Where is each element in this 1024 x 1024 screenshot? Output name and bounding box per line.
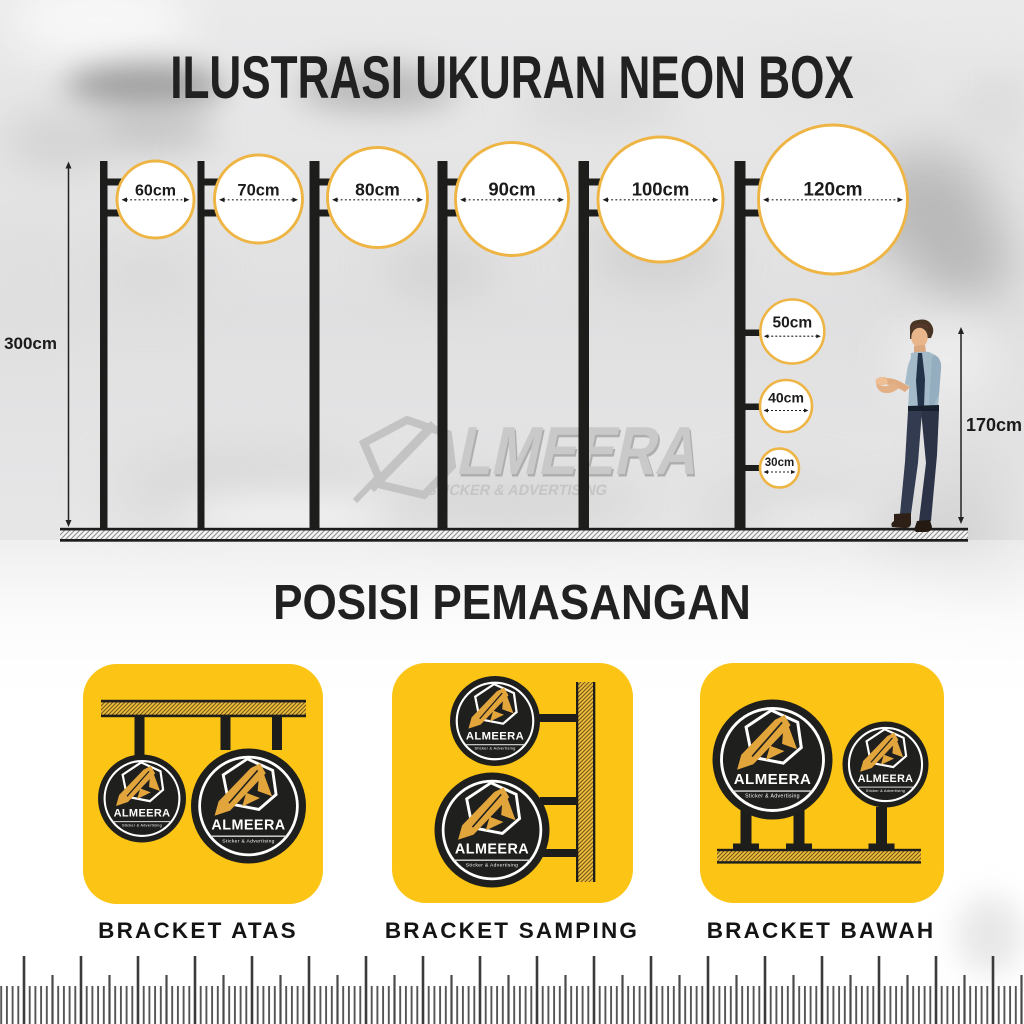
svg-text:90cm: 90cm [488,179,535,200]
svg-text:170cm: 170cm [966,415,1022,435]
svg-text:70cm: 70cm [237,182,279,200]
svg-text:50cm: 50cm [772,315,812,332]
svg-text:40cm: 40cm [768,390,804,406]
svg-text:60cm: 60cm [135,183,176,200]
svg-text:80cm: 80cm [355,180,400,200]
svg-text:300cm: 300cm [4,334,57,353]
svg-text:120cm: 120cm [803,180,862,201]
svg-text:30cm: 30cm [765,457,794,469]
svg-text:100cm: 100cm [632,179,690,200]
